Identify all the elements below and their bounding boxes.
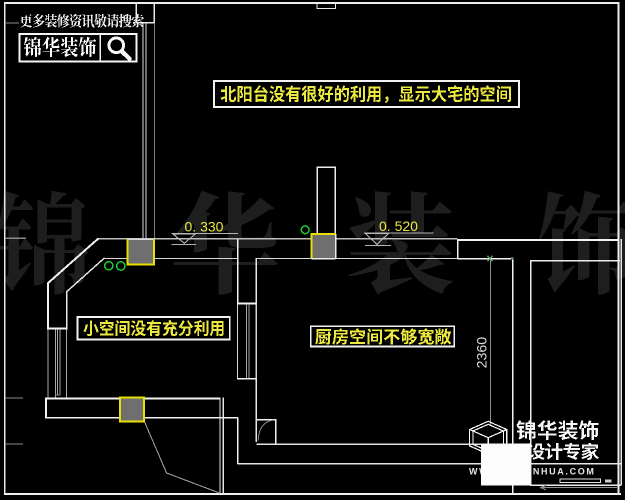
svg-text:0. 520: 0. 520 xyxy=(379,218,418,234)
svg-text:0. 330: 0. 330 xyxy=(185,219,224,235)
svg-text:2360: 2360 xyxy=(475,337,491,369)
